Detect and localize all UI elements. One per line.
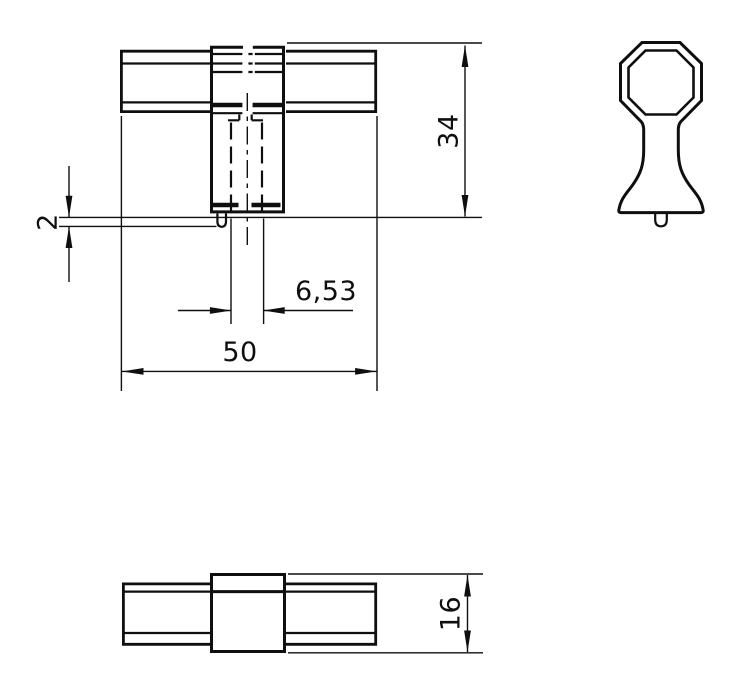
drawing-canvas: 34 2 6,53 50 bbox=[0, 0, 750, 700]
dimension-value-bar-thickness: 16 bbox=[436, 596, 467, 631]
arrowhead bbox=[122, 368, 144, 375]
dimension-value-overall-height: 34 bbox=[434, 113, 465, 148]
crossbar-right-arm-inner bbox=[286, 64, 375, 103]
dimension-value-overall-width: 50 bbox=[222, 337, 257, 368]
knob-side-profile bbox=[619, 43, 703, 213]
dimension-value-hole-width: 6,53 bbox=[295, 276, 357, 307]
dimension-value-pin-height: 2 bbox=[33, 213, 64, 231]
arrowhead bbox=[464, 631, 471, 653]
arrowhead bbox=[464, 575, 471, 597]
arrowhead bbox=[462, 46, 469, 68]
dimension-pin-height: 2 bbox=[33, 166, 217, 282]
counterbore-hooks bbox=[228, 115, 263, 121]
bottom-view: 16 bbox=[122, 574, 483, 653]
arrowhead bbox=[210, 307, 232, 314]
dimension-lines bbox=[178, 219, 353, 325]
crossbar-left-arm bbox=[120, 50, 210, 113]
side-view bbox=[619, 43, 703, 227]
arrowhead bbox=[66, 196, 73, 218]
dimension-hole-width: 6,53 bbox=[178, 219, 357, 325]
pin-side bbox=[655, 214, 667, 226]
crossbar-right-arm bbox=[286, 50, 376, 113]
front-view: 34 2 6,53 50 bbox=[33, 43, 483, 391]
dimension-lines bbox=[59, 166, 217, 282]
hidden-hole-lines bbox=[231, 123, 262, 201]
arrowhead bbox=[263, 307, 285, 314]
arrowhead bbox=[355, 368, 377, 375]
arrowhead bbox=[66, 227, 73, 249]
knob-front-top-lines bbox=[213, 54, 282, 72]
knob-side-inner-octagon bbox=[629, 51, 694, 115]
dimension-overall-width: 50 bbox=[121, 116, 377, 391]
knob-bottom-body bbox=[212, 575, 285, 652]
crossbar-left-arm-inner bbox=[122, 64, 210, 103]
pin-front bbox=[217, 214, 226, 227]
arrowhead bbox=[462, 195, 469, 217]
dimension-bar-thickness: 16 bbox=[288, 574, 483, 653]
technical-drawing: 34 2 6,53 50 bbox=[0, 0, 750, 700]
